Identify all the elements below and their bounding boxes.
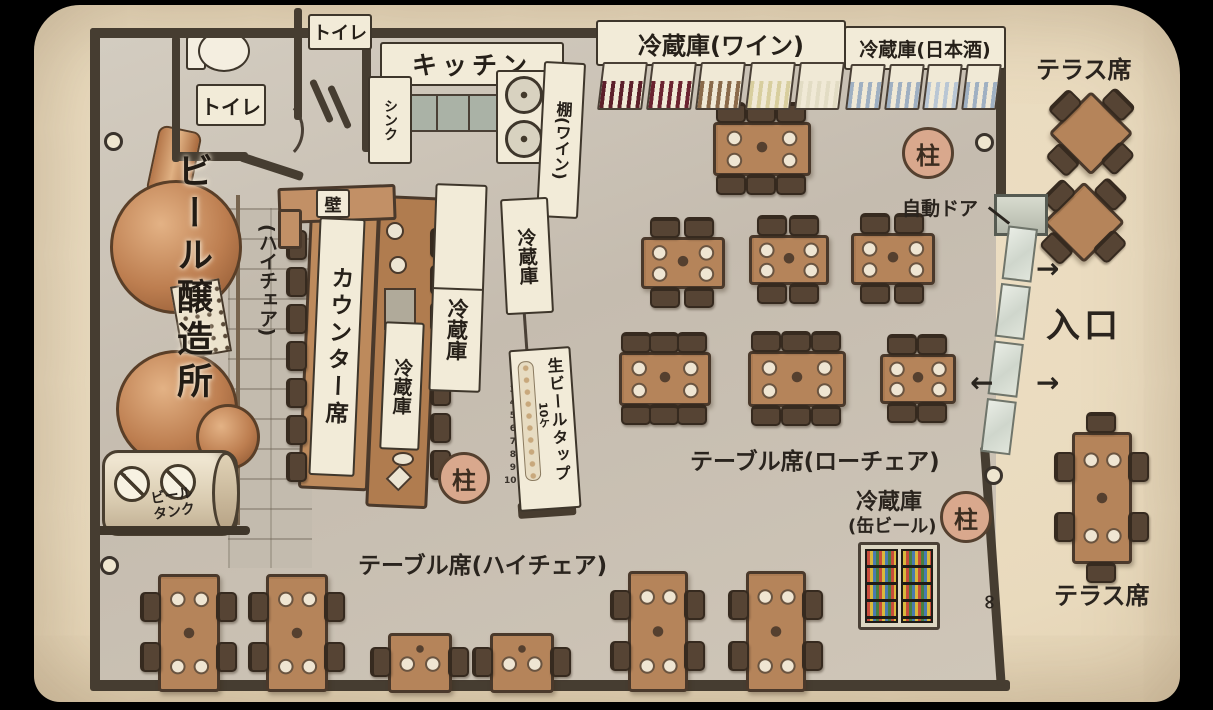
fridge-compartment — [961, 64, 1001, 110]
entry-arrow-icon: → — [1036, 366, 1059, 399]
chair — [1047, 88, 1083, 124]
door-glass-pane — [1002, 225, 1038, 282]
beer-tap-unit: 10ケ 生ビールタップ — [508, 346, 581, 512]
dining-table — [1049, 91, 1134, 176]
pillar-badge: 柱 — [940, 491, 992, 543]
fridge-compartment — [845, 64, 885, 110]
standing-fridge-2-label: 冷蔵庫 — [512, 227, 542, 285]
kitchen-counter — [404, 94, 508, 132]
photo-of-floor-plan: トイレ トイレ キッチン シンク 棚(ワイン) 冷蔵庫(ワイン) 冷蔵庫(日本酒… — [0, 0, 1213, 710]
chair — [1128, 452, 1149, 482]
counter-highchair-note: (ハイチェア) — [254, 224, 281, 424]
wine-shelf: 棚(ワイン) — [536, 61, 586, 219]
can-fridge-note: (缶ビール) — [848, 512, 936, 538]
stove-burner-icon — [505, 120, 543, 158]
wine-fridge-compartments — [598, 62, 844, 110]
fridge-compartment — [597, 62, 648, 110]
toilet2-wall-left — [294, 8, 302, 120]
wall-left — [90, 28, 100, 690]
counter-mug-icon — [386, 222, 404, 240]
wall-lamp-icon — [975, 133, 994, 152]
counter-fridge-label: 冷蔵庫 — [387, 357, 416, 415]
brewery-name: ビール醸造所 — [165, 152, 217, 462]
exit-arrow-icon: ← — [970, 366, 993, 399]
paper-sheet: トイレ トイレ キッチン シンク 棚(ワイン) 冷蔵庫(ワイン) 冷蔵庫(日本酒… — [34, 5, 1180, 702]
entry-arrow-icon: → — [1036, 252, 1059, 285]
toilet1-label: トイレ — [196, 84, 266, 126]
wall-lamp-icon — [100, 556, 119, 575]
wall-bottom — [90, 680, 1010, 691]
chair — [1054, 512, 1075, 542]
can-fridge-unit — [858, 542, 940, 630]
counter-fridge-box: 冷蔵庫 — [379, 321, 425, 451]
chair — [1092, 229, 1128, 265]
toilet2-label: トイレ — [308, 14, 372, 50]
chair — [1054, 452, 1075, 482]
fridge-compartment — [794, 62, 845, 110]
sink-unit: シンク — [368, 76, 412, 164]
chair — [1100, 87, 1136, 123]
door-glass-pane — [980, 398, 1016, 455]
wall-lamp-icon — [984, 466, 1003, 485]
pillar-badge: 柱 — [902, 127, 954, 179]
can-fridge-door — [901, 549, 934, 623]
dining-table — [1043, 181, 1125, 263]
wine-shelf-label: 棚(ワイン) — [547, 100, 575, 180]
chair — [1092, 176, 1128, 212]
wall-label: 壁 — [316, 189, 350, 218]
wall-bar-corner — [278, 209, 302, 249]
counter-mug-icon — [389, 256, 407, 274]
chair — [1086, 412, 1116, 433]
fridge-compartment — [745, 62, 796, 110]
fridge-compartment — [646, 62, 697, 110]
counter-dish-icon — [392, 452, 414, 466]
table-low-label: テーブル席(ローチェア) — [690, 442, 940, 476]
sink-label: シンク — [380, 99, 400, 141]
table-high-label: テーブル席(ハイチェア) — [358, 546, 607, 580]
terrace-bottom-label: テラス席 — [1054, 576, 1150, 611]
counter-seats-label: カウンター席 — [316, 265, 357, 428]
toilet1-wall-left — [172, 36, 180, 162]
standing-fridge-2: 冷蔵庫 — [500, 197, 554, 315]
fridge-upper-door — [434, 214, 485, 291]
can-fridge-door — [865, 549, 898, 623]
wine-fridge-label: 冷蔵庫(ワイン) — [596, 20, 846, 66]
chair — [1099, 140, 1135, 176]
pillar-badge: 柱 — [438, 452, 490, 504]
door-glass-pane — [995, 283, 1031, 340]
standing-fridge-1: 冷蔵庫 — [428, 183, 487, 393]
standing-fridge-1-label: 冷蔵庫 — [440, 298, 472, 362]
fridge-compartment — [884, 64, 924, 110]
fridge-compartment — [922, 64, 962, 110]
wall-lamp-icon — [104, 132, 123, 151]
dining-table — [1072, 432, 1132, 564]
wall-hook-icon: ∞ — [978, 594, 1002, 611]
auto-door-label: 自動ドア — [902, 194, 978, 221]
chair — [1045, 142, 1081, 178]
chair — [1128, 512, 1149, 542]
fridge-compartment — [695, 62, 746, 110]
stove-burner-icon — [505, 76, 543, 114]
beer-tap-label: 生ビールタップ — [541, 356, 574, 483]
table-group — [1052, 410, 1146, 580]
tank-platform — [92, 526, 250, 535]
terrace-top-label: テラス席 — [1036, 50, 1132, 85]
entrance-label: 入口 — [1046, 298, 1122, 347]
sake-fridge-compartments — [846, 64, 1000, 110]
